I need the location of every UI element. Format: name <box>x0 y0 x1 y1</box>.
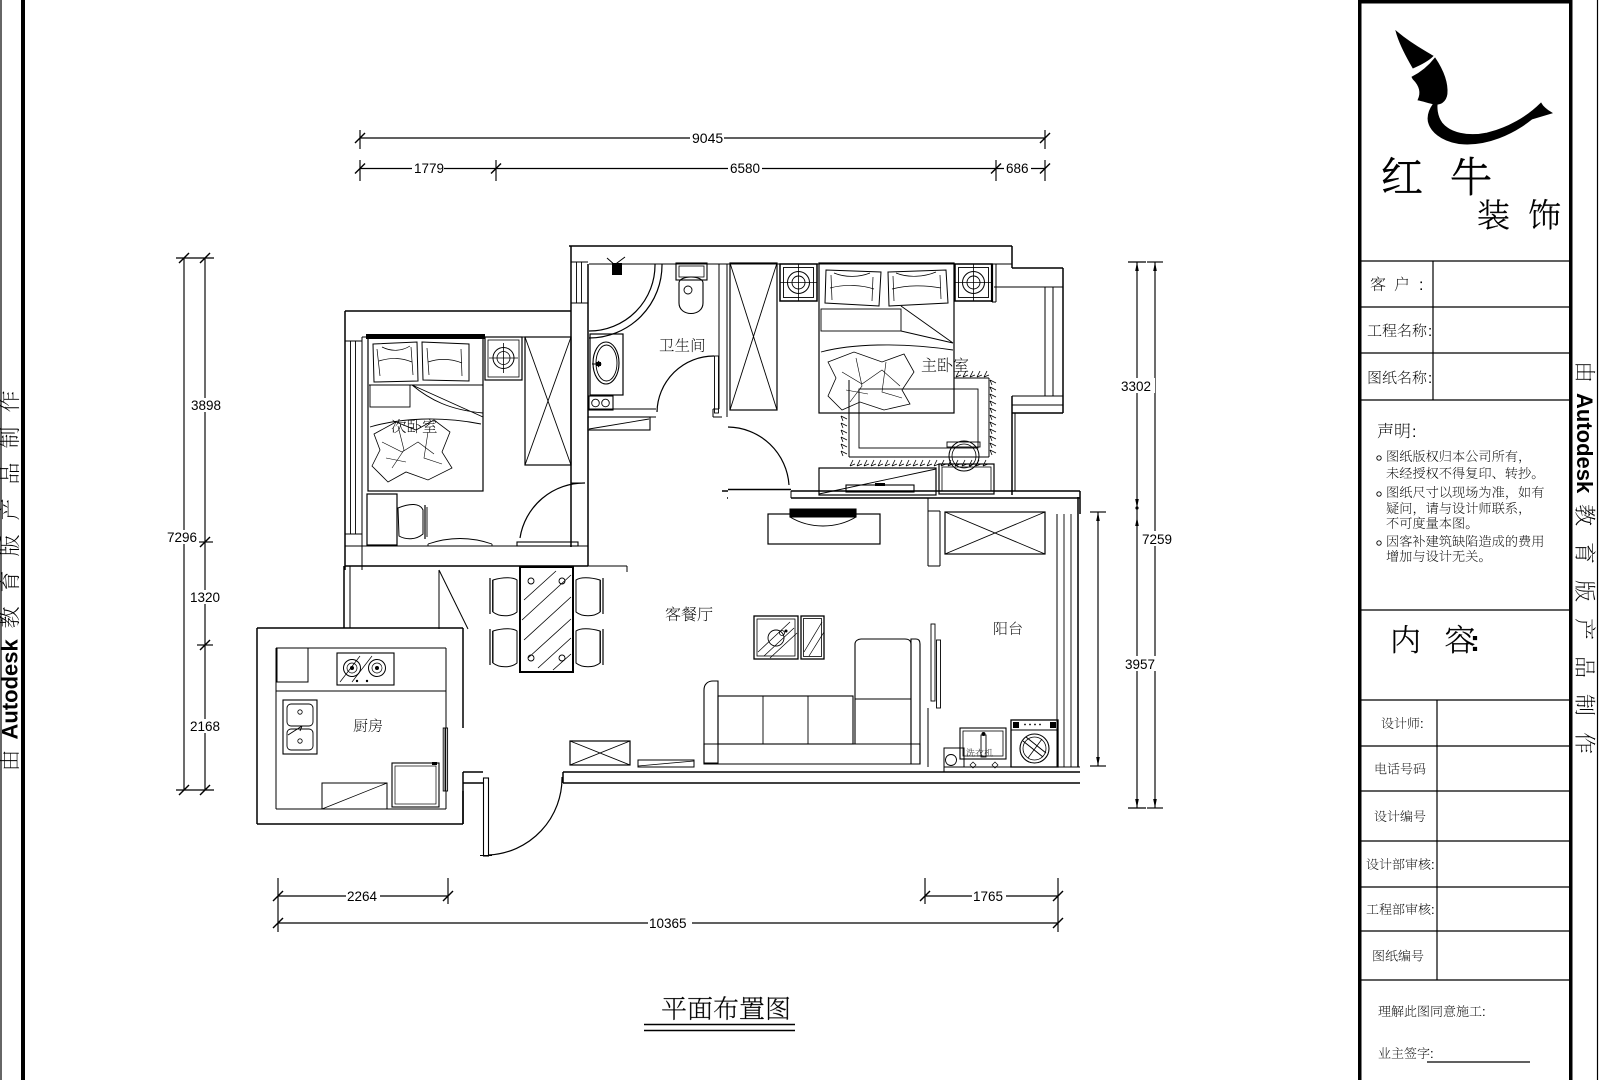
svg-text::: : <box>1412 424 1416 441</box>
svg-text:9045: 9045 <box>692 130 723 146</box>
svg-text:Autodesk: Autodesk <box>1572 393 1597 494</box>
svg-text:6580: 6580 <box>730 161 760 176</box>
svg-text:3957: 3957 <box>1125 657 1155 672</box>
svg-text:1765: 1765 <box>973 889 1003 904</box>
svg-text::: : <box>1428 370 1432 387</box>
svg-text:Autodesk: Autodesk <box>0 639 23 740</box>
svg-text:2264: 2264 <box>347 889 378 904</box>
svg-text::: : <box>1419 277 1423 294</box>
svg-text::: : <box>1431 857 1435 872</box>
svg-text:1779: 1779 <box>414 161 444 176</box>
svg-text::: : <box>1470 625 1480 658</box>
svg-text::: : <box>1428 323 1432 340</box>
svg-text:7259: 7259 <box>1142 532 1172 547</box>
svg-text:3898: 3898 <box>191 398 221 413</box>
svg-text:3302: 3302 <box>1121 379 1151 394</box>
svg-text::: : <box>1420 716 1424 731</box>
svg-text:1320: 1320 <box>190 590 220 605</box>
svg-text:686: 686 <box>1006 161 1029 176</box>
svg-text:10365: 10365 <box>649 916 687 931</box>
svg-text::: : <box>1430 1046 1434 1061</box>
svg-text:2168: 2168 <box>190 719 220 734</box>
svg-text::: : <box>1431 902 1435 917</box>
svg-text:7296: 7296 <box>167 530 197 545</box>
svg-text::: : <box>1482 1004 1486 1019</box>
